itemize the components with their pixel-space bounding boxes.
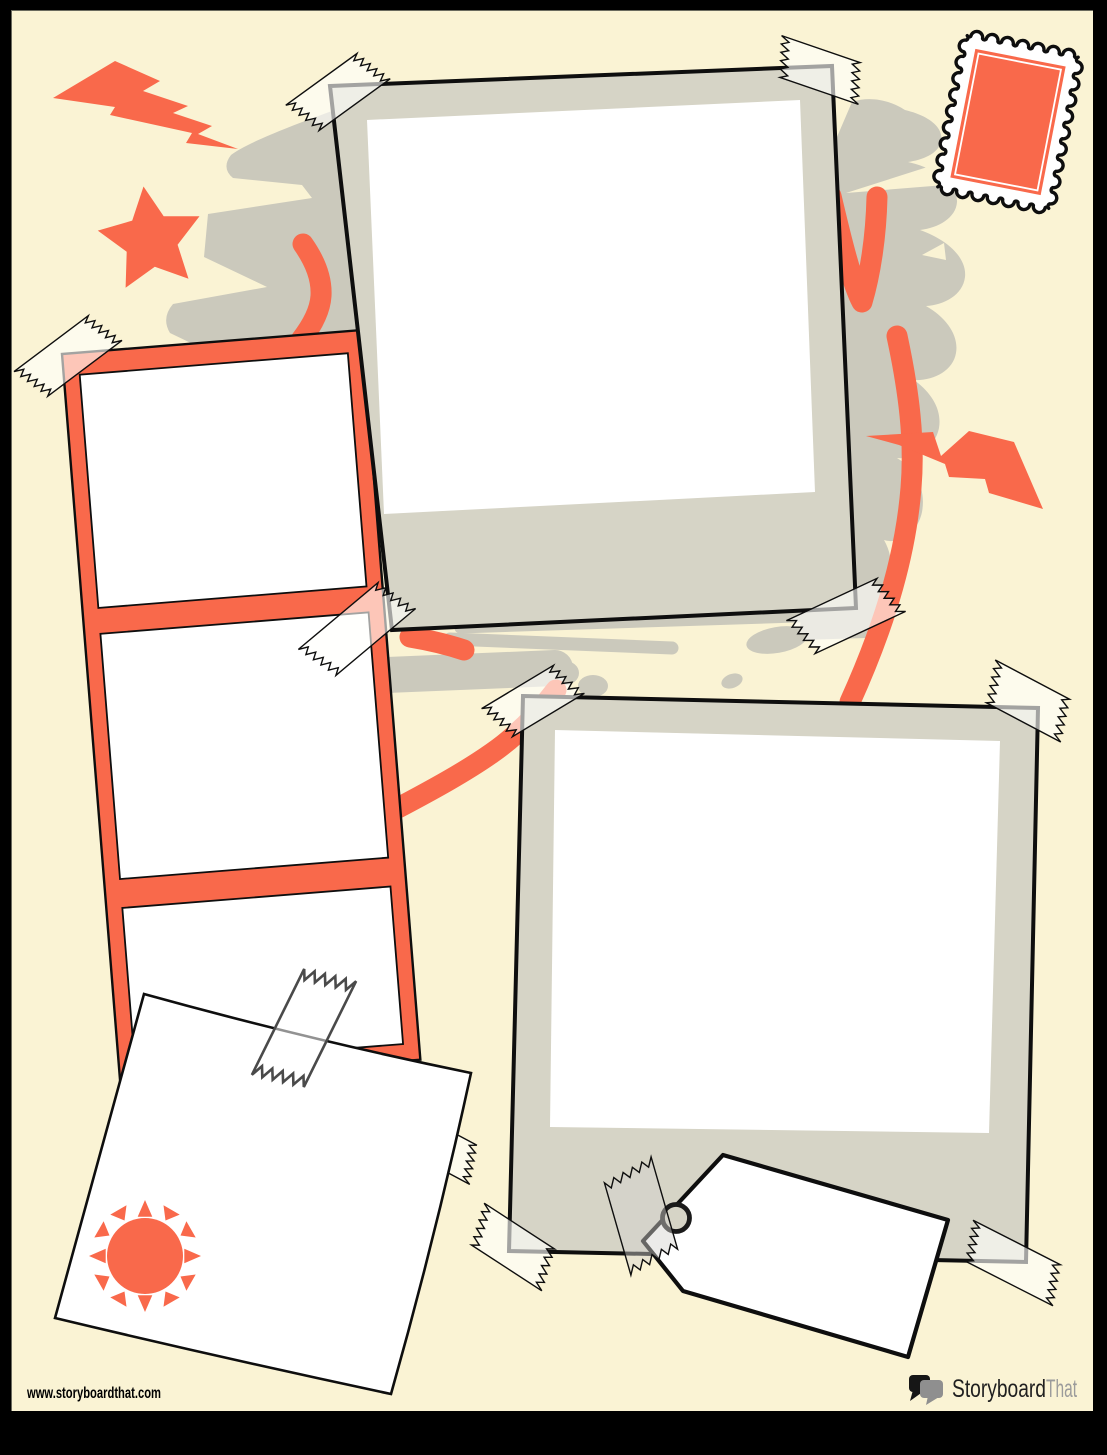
svg-text:www.storyboardthat.com: www.storyboardthat.com [26, 1385, 161, 1402]
svg-text:Storyboard: Storyboard [952, 1375, 1046, 1403]
svg-text:That: That [1046, 1375, 1077, 1403]
